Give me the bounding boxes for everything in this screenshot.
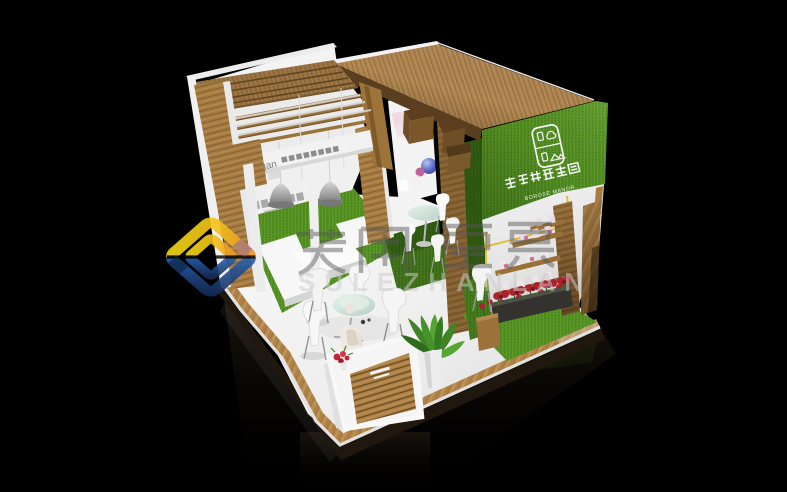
svg-text:SULEZHANLAN: SULEZHANLAN	[298, 267, 592, 297]
